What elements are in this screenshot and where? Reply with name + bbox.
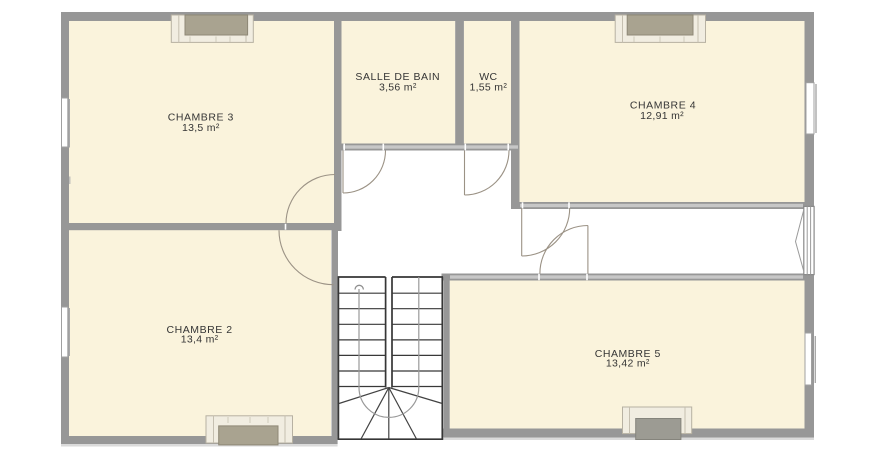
svg-text:13,4 m²: 13,4 m² (181, 333, 219, 345)
svg-text:13,42 m²: 13,42 m² (606, 357, 650, 369)
svg-text:3,56 m²: 3,56 m² (379, 82, 417, 94)
svg-text:1,55 m²: 1,55 m² (469, 82, 507, 94)
svg-text:12,91 m²: 12,91 m² (640, 110, 684, 122)
svg-text:13,5 m²: 13,5 m² (182, 122, 220, 134)
